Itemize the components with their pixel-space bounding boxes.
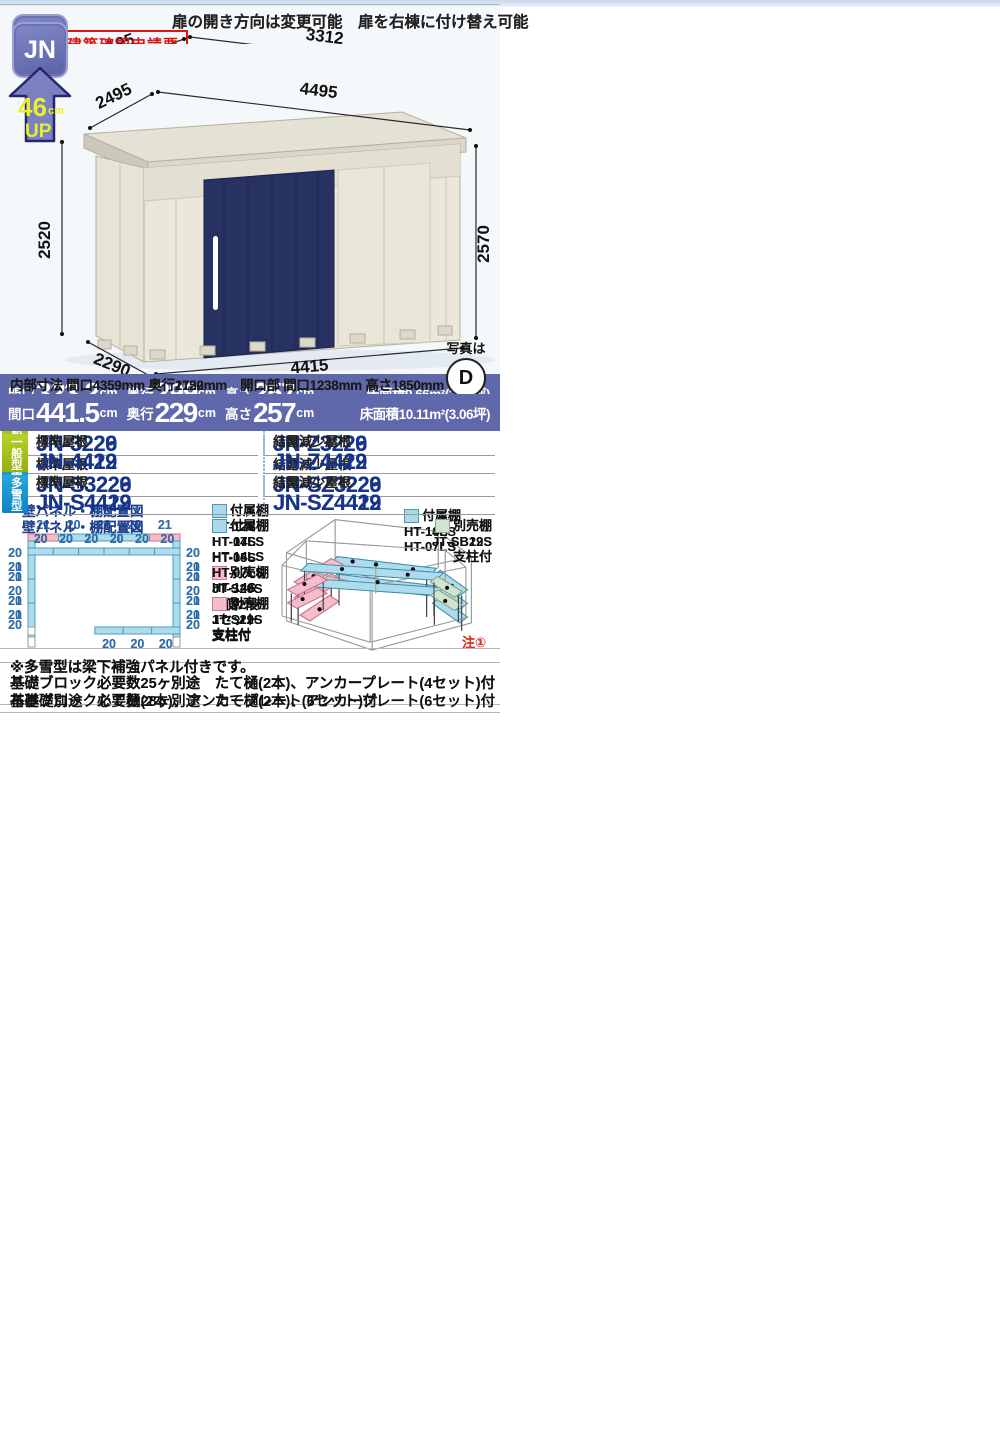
svg-text:46: 46 <box>18 92 47 122</box>
general-type-badge: 一般型 <box>2 434 28 472</box>
floor-area: 床面積10.11m²(3.06坪) <box>360 403 490 423</box>
svg-text:20: 20 <box>59 532 73 546</box>
photo-variant-note: 写真は D <box>446 342 486 398</box>
divider <box>0 4 500 5</box>
svg-text:20: 20 <box>34 532 48 546</box>
svg-text:UP: UP <box>25 121 52 142</box>
model-number-table: 一般型 標準屋根JN-4422 結露減少屋根JN-Z4422 多雪型 標準屋根J… <box>2 434 495 516</box>
door-direction-note: 扉の開き方向は変更可能 扉を右棟に付け替え可能 <box>172 10 529 32</box>
shelf-accessory-list: 付属棚 HT-07S HT-14LS HT-07LS HT-14S 別売棚 JT… <box>212 518 269 643</box>
dim-left-height: 2520 <box>35 221 54 259</box>
svg-text:20: 20 <box>186 608 200 622</box>
svg-text:20: 20 <box>160 532 174 546</box>
wall-panel-layout-map: 202020202020202020202020202020 <box>2 528 207 654</box>
46cm-up-arrow-icon: 46 cm UP <box>8 66 72 144</box>
divider <box>0 648 500 649</box>
size-spec-bar: 間口441.5cm 奥行229cm 高さ257cm 床面積10.11m²(3.0… <box>0 394 500 431</box>
snow-type-note: ※多雪型は梁下補強パネル付きです。 <box>10 656 255 677</box>
model-standard: JN-4422 <box>36 451 258 473</box>
optional-shelf-green-swatch <box>435 519 450 533</box>
catalog-page: { "labels": { "jn": "JN", "up_value": "4… <box>0 0 1000 1443</box>
svg-text:20: 20 <box>110 532 124 546</box>
svg-text:20: 20 <box>8 608 22 622</box>
dim-bottom-width: 4415 <box>290 355 329 374</box>
model-snow-dew: JN-SZ4422 <box>273 492 495 514</box>
shed-photo-jn-4422: 2495 4495 2520 2570 2290 4415 <box>0 44 500 374</box>
divider <box>0 712 500 713</box>
right-shelf-labels: 別売棚 JT-SB22S 支柱付 <box>432 518 492 565</box>
svg-text:20: 20 <box>135 532 149 546</box>
inner-dimensions: 内部寸法 間口4359mm 奥行2120mm 開口部 間口1238mm 高さ18… <box>10 374 444 394</box>
svg-text:20: 20 <box>186 560 200 574</box>
svg-text:cm: cm <box>48 105 64 117</box>
heavy-snow-type-row: 多雪型 標準屋根JN-S4422 結露減少屋根JN-SZ4422 <box>2 475 495 515</box>
svg-text:20: 20 <box>186 584 200 598</box>
dim-right-height: 2570 <box>474 225 493 263</box>
heavy-snow-badge: 多雪型 <box>2 475 28 513</box>
model-snow-standard: JN-S4422 <box>36 492 258 514</box>
svg-text:20: 20 <box>84 532 98 546</box>
foundation-note: 布基礎別途 たて樋(2本)、アンカープレート(6セット)付 <box>10 690 378 711</box>
photo-letter-circle: D <box>446 358 486 398</box>
included-shelf-swatch <box>212 519 227 533</box>
model-dew-reduced: JN-Z4422 <box>273 451 495 473</box>
optional-shelf-swatch <box>212 597 227 611</box>
svg-text:20: 20 <box>8 584 22 598</box>
svg-text:20: 20 <box>8 560 22 574</box>
general-type-row: 一般型 標準屋根JN-4422 結露減少屋根JN-Z4422 <box>2 434 495 474</box>
